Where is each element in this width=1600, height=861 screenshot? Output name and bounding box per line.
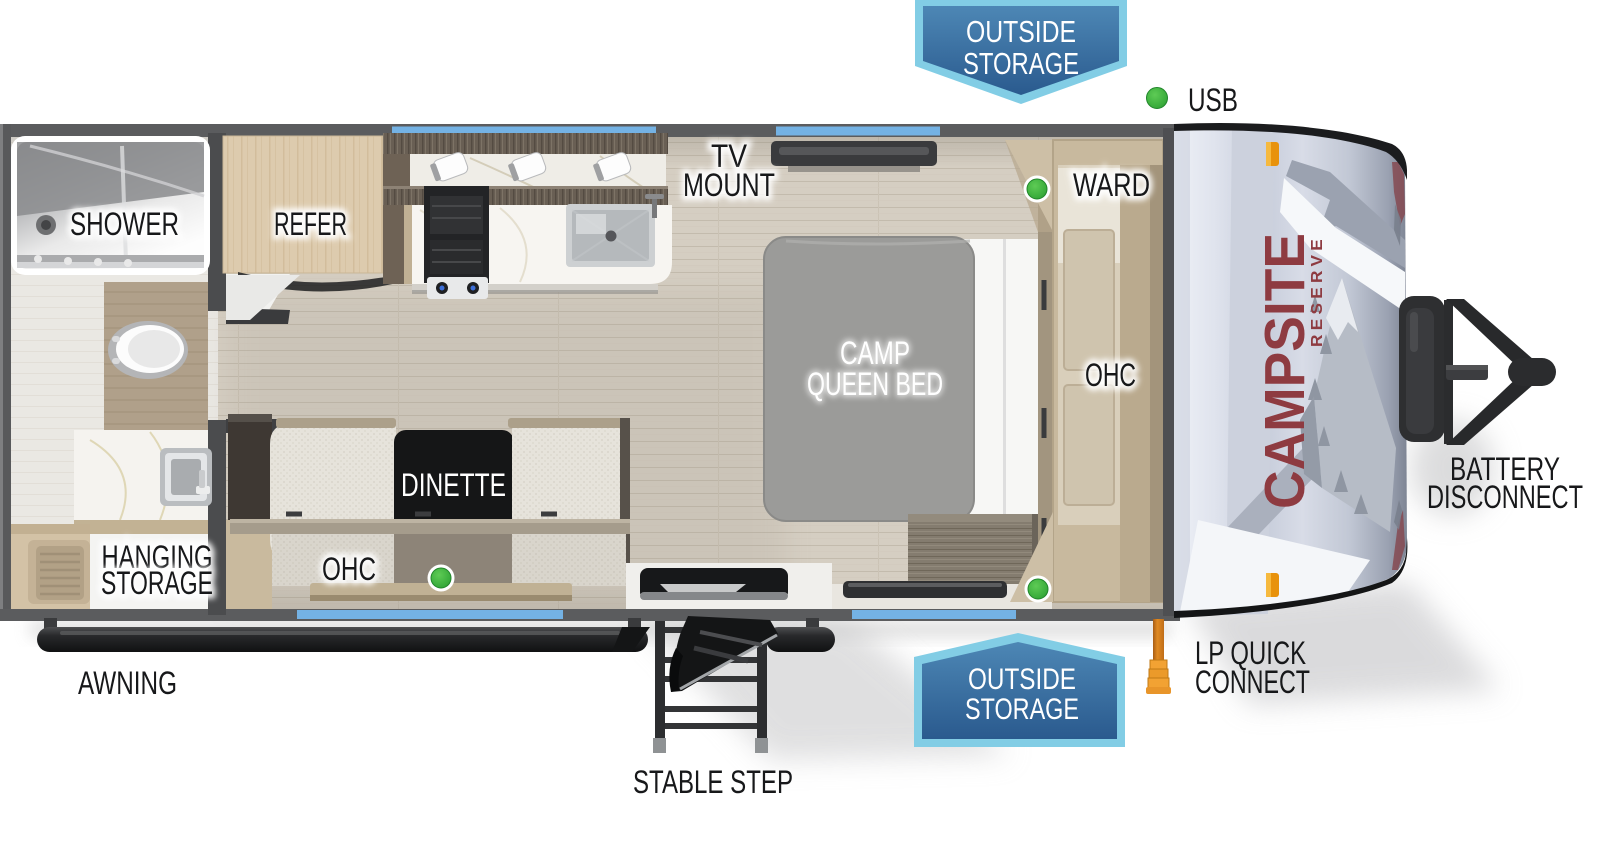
svg-text:STORAGE: STORAGE bbox=[965, 693, 1079, 726]
svg-text:STORAGE: STORAGE bbox=[101, 565, 213, 601]
svg-text:QUEEN BED: QUEEN BED bbox=[807, 366, 943, 402]
svg-text:SHOWER: SHOWER bbox=[70, 206, 179, 242]
svg-text:STABLE STEP: STABLE STEP bbox=[633, 764, 793, 800]
svg-text:OUTSIDE: OUTSIDE bbox=[966, 14, 1076, 49]
svg-text:REFER: REFER bbox=[274, 206, 347, 242]
svg-text:STORAGE: STORAGE bbox=[963, 46, 1079, 81]
svg-text:DINETTE: DINETTE bbox=[401, 467, 506, 503]
svg-text:RESERVE: RESERVE bbox=[1309, 235, 1326, 347]
svg-text:DISCONNECT: DISCONNECT bbox=[1427, 479, 1583, 515]
svg-text:OHC: OHC bbox=[322, 551, 376, 587]
svg-text:OUTSIDE: OUTSIDE bbox=[968, 663, 1076, 696]
svg-text:MOUNT: MOUNT bbox=[683, 167, 775, 203]
svg-text:WARD: WARD bbox=[1073, 167, 1150, 203]
svg-text:AWNING: AWNING bbox=[78, 665, 177, 701]
svg-text:CONNECT: CONNECT bbox=[1195, 664, 1310, 700]
svg-text:USB: USB bbox=[1188, 82, 1238, 118]
svg-text:CAMPSITE: CAMPSITE bbox=[1253, 233, 1317, 509]
svg-text:OHC: OHC bbox=[1085, 357, 1136, 393]
